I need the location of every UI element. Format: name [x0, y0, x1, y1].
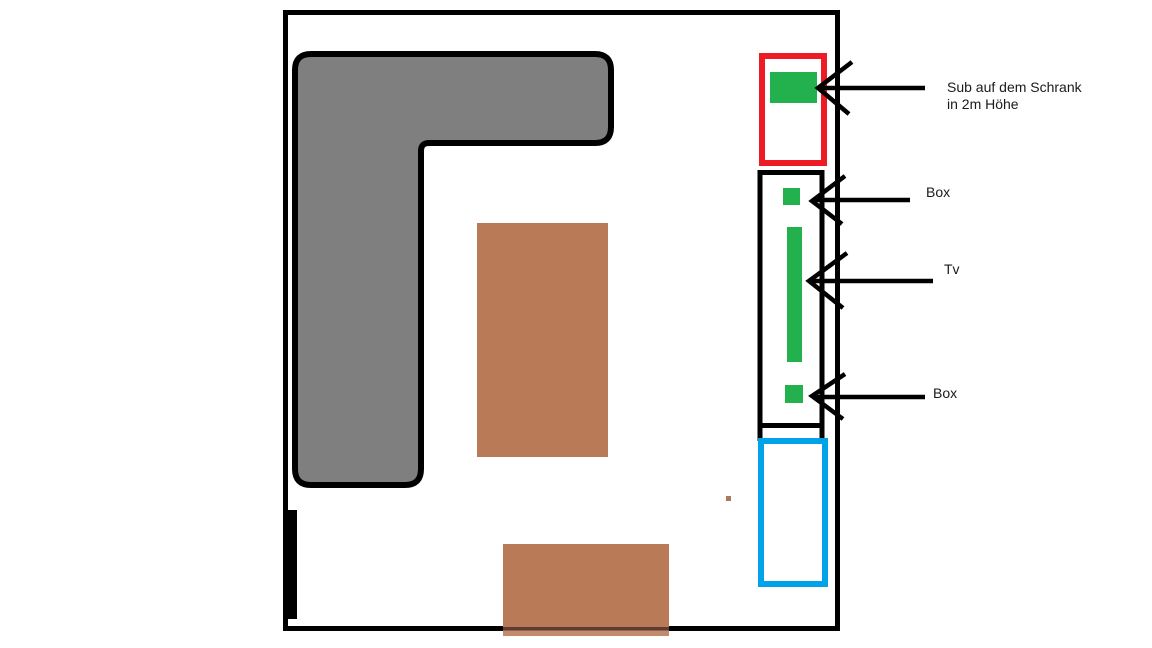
box-bottom-label: Box: [933, 385, 957, 402]
coffee-table: [477, 223, 608, 457]
subwoofer-green: [770, 72, 817, 103]
sub-arrow: [818, 62, 925, 114]
tv-arrow: [809, 253, 933, 308]
speaker-box-bottom: [785, 385, 803, 403]
box-top-arrow: [812, 176, 910, 224]
speaker-box-top: [783, 188, 800, 205]
box-bottom-arrow: [812, 374, 925, 419]
door-marker: [284, 510, 297, 619]
blue-cabinet-outline: [761, 441, 825, 584]
box-top-label: Box: [926, 184, 950, 201]
bottom-table: [503, 544, 669, 627]
small-brown-dot: [726, 496, 731, 501]
bottom-table-wall-line: [503, 627, 669, 631]
sub-label-line2: in 2m Höhe: [947, 96, 1082, 113]
floorplan-page: Sub auf dem Schrank in 2m Höhe Box Tv Bo…: [0, 0, 1152, 648]
tv-label: Tv: [944, 261, 960, 278]
tv-green-bar: [787, 227, 802, 362]
sub-label-line1: Sub auf dem Schrank: [947, 79, 1082, 96]
sub-label: Sub auf dem Schrank in 2m Höhe: [947, 79, 1082, 113]
bottom-table-outer-strip: [503, 631, 669, 637]
